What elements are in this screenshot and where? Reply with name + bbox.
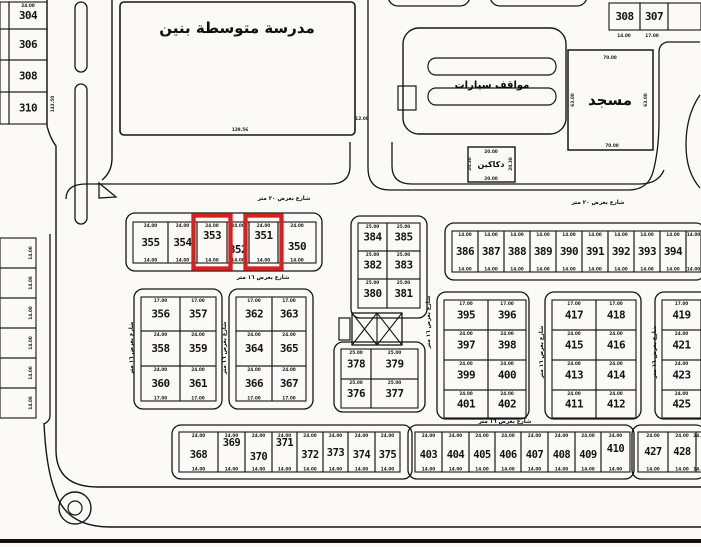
plot-block-block_427: 42724.0014.0042824.0014.0024.0014.00 — [632, 425, 701, 479]
dim-label: 14.00 — [28, 396, 34, 410]
dim-label: 25.00 — [397, 224, 411, 230]
block-curb — [134, 289, 222, 409]
dim-shops-bottom: 20.00 — [484, 176, 498, 182]
dim-label: 14.00 — [562, 232, 576, 238]
plot-block-block_362: 36217.0036317.0036424.0036524.0036624.00… — [229, 289, 313, 409]
dim-label: 24.00 — [247, 332, 261, 338]
plot-cell — [668, 3, 701, 30]
plot-block-row_368: 36824.0014.0036924.0014.0037024.0014.003… — [172, 425, 412, 479]
dim-label: 24.00 — [693, 433, 701, 439]
dim-label: 14.00 — [192, 467, 206, 473]
plot-block-row_350: 35524.0014.0035424.0014.0035324.0014.003… — [126, 213, 322, 271]
plot-number-388: 388 — [508, 245, 526, 258]
dim-label: 24.00 — [459, 391, 473, 397]
dim-label: 17.00 — [645, 33, 659, 39]
dim-mosque-side: 63.00 — [570, 93, 576, 107]
plot-number-373: 373 — [327, 447, 345, 459]
dim-label: 24.00 — [290, 223, 304, 229]
dim-label: 25.00 — [388, 380, 402, 386]
dim-label: 17.00 — [247, 396, 261, 402]
plot-number-406: 406 — [499, 449, 517, 461]
plot-block-block_356: 35617.0035717.0035824.0035924.0036024.00… — [134, 289, 222, 409]
dim-label: 24.00 — [609, 433, 623, 439]
dim-label: 14.00 — [449, 467, 463, 473]
dim-label: 24.00 — [555, 433, 569, 439]
dim-label: 24.00 — [581, 433, 595, 439]
plot-number-389: 389 — [534, 245, 552, 258]
dim-label: 24.00 — [144, 223, 158, 229]
plot-number-414: 414 — [607, 369, 626, 382]
dim-label: 14.00 — [252, 467, 266, 473]
dim-label: 24.00 — [282, 332, 296, 338]
dim-label: 24.00 — [176, 223, 190, 229]
plot-number-375: 375 — [379, 449, 397, 461]
plot-number-354: 354 — [173, 236, 192, 249]
dim-label: 24.00 — [231, 223, 245, 229]
dim-label: 14.00 — [640, 267, 654, 273]
plot-number-408: 408 — [553, 449, 571, 461]
block-curb — [229, 289, 313, 409]
plot-number-387: 387 — [482, 245, 500, 258]
plot-number-428: 428 — [673, 446, 691, 458]
utility-plot — [339, 318, 350, 340]
plot-number-396: 396 — [498, 309, 517, 322]
dim-label: 24.00 — [475, 433, 489, 439]
plot-number-385: 385 — [394, 231, 412, 244]
parking-row — [428, 58, 556, 75]
dim-label: 24.00 — [329, 433, 343, 439]
dim-label: 14.00 — [176, 258, 190, 264]
dim-label: 24.00 — [675, 331, 689, 337]
plot-number-399: 399 — [457, 369, 475, 382]
dim-label: 24.00 — [303, 433, 317, 439]
dim-label: 17.00 — [154, 396, 168, 402]
dim-label: 24.00 — [459, 361, 473, 367]
dim-label: 25.00 — [366, 252, 380, 258]
plot-block-left_strip: 14.0014.0014.0014.0014.0014.00 — [0, 238, 36, 418]
road-edge — [47, 126, 701, 487]
plot-number-308: 308 — [615, 10, 633, 23]
dim-label: 24.00 — [675, 391, 689, 397]
plot-number-402: 402 — [498, 398, 516, 411]
plot-number-359: 359 — [189, 342, 207, 355]
block-curb — [172, 425, 412, 479]
dim-shops-side: 20.30 — [467, 157, 473, 171]
dim-label: 24.00 — [192, 433, 206, 439]
dim-school-width: 129.56 — [232, 127, 249, 133]
dim-label: 24.00 — [247, 367, 261, 373]
dim-label: 14.00 — [614, 232, 628, 238]
street-label-16m-vertical: شارع بعرض ١٦ متر — [426, 295, 432, 349]
dim-label: 24.00 — [191, 332, 205, 338]
plot-number-395: 395 — [457, 309, 475, 322]
dim-label: 14.00 — [536, 232, 550, 238]
dim-label: 24.00 — [675, 433, 689, 439]
dim-label: 24.00 — [225, 433, 239, 439]
plot-cell — [0, 29, 9, 60]
dim-label: 14.00 — [381, 467, 395, 473]
plot-number-391: 391 — [586, 245, 605, 258]
dim-label: 24.00 — [21, 3, 35, 9]
dim-label: 14.00 — [687, 232, 701, 238]
dim-label: 14.00 — [588, 267, 602, 273]
plot-number-409: 409 — [579, 449, 597, 461]
road-median — [75, 2, 87, 72]
dim-label: 25.00 — [366, 280, 380, 286]
dim-label: 24.00 — [257, 223, 271, 229]
plot-cell — [0, 60, 9, 92]
plot-number-415: 415 — [565, 339, 583, 352]
dim-label: 14.00 — [475, 467, 489, 473]
dim-label: 14.00 — [510, 232, 524, 238]
dim-label: 14.00 — [687, 267, 701, 273]
plot-number-404: 404 — [447, 449, 465, 461]
dim-label: 24.00 — [567, 361, 581, 367]
plot-block-left_sliver — [0, 2, 9, 124]
dim-label: 24.00 — [500, 391, 514, 397]
dim-label: 24.00 — [381, 433, 395, 439]
plot-number-384: 384 — [363, 231, 382, 244]
block-cut-top — [490, 0, 587, 6]
street-label-16m-vertical: شارع بعرض ١٦ متر — [222, 321, 228, 375]
plot-block-block_417: 41717.0041817.0041524.0041624.0041324.00… — [545, 292, 641, 419]
dim-label: 14.00 — [675, 467, 689, 473]
plot-number-358: 358 — [151, 342, 169, 355]
dim-label: 17.00 — [609, 301, 623, 307]
plot-number-411: 411 — [565, 398, 584, 411]
dim-label: 17.00 — [567, 301, 581, 307]
dim-label: 14.00 — [536, 267, 550, 273]
dim-label: 24.00 — [609, 361, 623, 367]
dim-label: 14.00 — [290, 258, 304, 264]
plot-block-block_378: 37825.0037925.0037625.0037725.00 — [334, 342, 425, 412]
plot-number-304: 304 — [19, 9, 38, 22]
dim-label: 14.00 — [28, 366, 34, 380]
dim-label: 24.00 — [675, 361, 689, 367]
plot-number-351: 351 — [254, 229, 273, 242]
street-label-16m-vertical: شارع بعرض ١٦ متر — [539, 325, 545, 379]
dim-label: 25.00 — [366, 224, 380, 230]
street-curb — [392, 142, 664, 184]
plot-number-427: 427 — [644, 446, 662, 458]
plot-number-405: 405 — [473, 449, 491, 461]
dim-label: 14.00 — [562, 267, 576, 273]
dim-label: 24.00 — [154, 332, 168, 338]
dim-label: 17.00 — [282, 298, 296, 304]
dim-label: 24.00 — [278, 433, 292, 439]
plot-number-383: 383 — [394, 259, 412, 272]
plot-block-block_419: 41917.0017.0042124.0024.0042324.0024.004… — [655, 292, 701, 419]
plot-number-386: 386 — [456, 245, 475, 258]
plot-cell — [0, 2, 9, 29]
plot-number-392: 392 — [612, 245, 630, 258]
dim-label: 17.00 — [154, 298, 168, 304]
dim-label: 25.00 — [397, 252, 411, 258]
plot-number-374: 374 — [353, 449, 371, 461]
dim-label: 14.00 — [640, 232, 654, 238]
plot-number-403: 403 — [420, 449, 438, 461]
dim-label: 24.00 — [609, 331, 623, 337]
dim-label: 14.00 — [278, 467, 292, 473]
plot-block-row_386: 38614.0014.0038714.0014.0038814.0014.003… — [445, 223, 701, 280]
dim-label: 14.00 — [588, 232, 602, 238]
dim-label: 25.00 — [349, 380, 363, 386]
mosque-label: مسجد — [588, 91, 632, 109]
dim-label: 17.00 — [191, 298, 205, 304]
dim-label: 14.00 — [231, 258, 245, 264]
dim-label: 25.00 — [388, 350, 402, 356]
plot-number-355: 355 — [141, 236, 159, 249]
dim-label: 17.00 — [282, 396, 296, 402]
plot-number-407: 407 — [526, 449, 544, 461]
dim-label: 24.00 — [355, 433, 369, 439]
plot-number-306: 306 — [19, 38, 38, 51]
dim-label: 14.00 — [144, 258, 158, 264]
plot-block-block_395: 39517.0039617.0039724.0039824.0039924.00… — [437, 292, 529, 419]
dim-label: 14.00 — [225, 467, 239, 473]
street-label-20m: شارع بعرض ٢٠ متر — [571, 200, 625, 206]
traffic-island — [99, 183, 116, 198]
dim-label: 14.00 — [458, 232, 472, 238]
plot-number-398: 398 — [498, 339, 516, 352]
parking-label: مواقف سيارات — [455, 80, 530, 91]
plot-number-394: 394 — [664, 245, 683, 258]
plot-number-400: 400 — [498, 369, 516, 382]
dim-label: 17.00 — [459, 301, 473, 307]
dim-label: 24.00 — [500, 361, 514, 367]
dim-label: 24.00 — [528, 433, 542, 439]
dim-label: 14.00 — [303, 467, 317, 473]
plot-number-401: 401 — [457, 398, 476, 411]
dim-label: 17.00 — [675, 301, 689, 307]
dim-label: 14.00 — [555, 467, 569, 473]
dim-label: 24.00 — [501, 433, 515, 439]
dim-mosque-side: 63.00 — [643, 93, 649, 107]
street-label-16m-vertical: شارع بعرض ١٦ متر — [652, 325, 658, 379]
dim-label: 24.00 — [205, 223, 219, 229]
plot-number-397: 397 — [457, 339, 475, 352]
block-curb — [44, 234, 50, 424]
plot-number-380: 380 — [363, 287, 381, 300]
plot-number-377: 377 — [385, 387, 403, 400]
plot-number-365: 365 — [280, 342, 298, 355]
dim-label: 24.00 — [154, 367, 168, 373]
plot-number-350: 350 — [288, 240, 306, 253]
plot-cell — [0, 92, 9, 124]
plot-number-393: 393 — [638, 245, 656, 258]
plot-number-379: 379 — [385, 358, 403, 371]
dim-label: 17.00 — [191, 396, 205, 402]
dim-label: 24.00 — [567, 391, 581, 397]
roundabout-inner — [68, 501, 82, 515]
plot-number-308: 308 — [19, 70, 37, 83]
road-edge — [686, 95, 700, 188]
plot-number-376: 376 — [347, 387, 366, 400]
dim-label: 14.00 — [28, 246, 34, 260]
dim-shops-top: 20.00 — [484, 149, 498, 155]
dim-label: 24.00 — [191, 367, 205, 373]
dim-label: 14.00 — [617, 33, 631, 39]
dim-label: 14.00 — [646, 467, 660, 473]
dim-label: 14.00 — [484, 267, 498, 273]
dim-label: 17.00 — [247, 298, 261, 304]
plot-number-353: 353 — [203, 229, 221, 242]
plot-map-canvas: 30424.0030630831030830735524.0014.003542… — [0, 0, 701, 547]
dim-label: 24.00 — [646, 433, 660, 439]
dim-label: 14.00 — [484, 232, 498, 238]
plot-block-top_right: 308307 — [609, 3, 701, 30]
road-median — [75, 84, 87, 224]
plot-number-425: 425 — [672, 398, 690, 411]
school-label: مدرسة متوسطة بنين — [159, 19, 315, 37]
map-bottom-border — [0, 539, 701, 543]
dim-label: 14.00 — [581, 467, 595, 473]
dim-label: 14.00 — [28, 336, 34, 350]
dim-label: 14.00 — [693, 467, 701, 473]
dim-label: 24.00 — [449, 433, 463, 439]
dim-label: 14.00 — [257, 258, 271, 264]
street-label-16m: شارع بعرض ١٦ متر — [236, 275, 290, 281]
street-label-16m: شارع بعرض ١٦ متر — [478, 419, 532, 425]
plot-number-357: 357 — [189, 308, 207, 321]
dim-label: 14.00 — [510, 267, 524, 273]
plot-number-419: 419 — [672, 309, 690, 322]
dim-label: 14.00 — [666, 267, 680, 273]
plot-number-370: 370 — [250, 451, 268, 463]
parking-kiosk — [398, 86, 416, 110]
dim-label: 25.00 — [397, 280, 411, 286]
plot-number-390: 390 — [560, 245, 578, 258]
plot-number-413: 413 — [565, 369, 583, 382]
dim-label: 24.00 — [282, 367, 296, 373]
plot-number-421: 421 — [672, 339, 691, 352]
plot-number-307: 307 — [645, 10, 663, 23]
dim-label: 25.00 — [349, 350, 363, 356]
plot-number-412: 412 — [607, 398, 625, 411]
plot-block-row_403: 40324.0014.0040424.0014.0040524.0014.004… — [408, 425, 634, 479]
dim-label: 14.00 — [355, 467, 369, 473]
plot-number-367: 367 — [280, 377, 298, 390]
dim-shops-side: 20.30 — [508, 157, 514, 171]
road-edge — [44, 423, 701, 527]
dim-label: 24.00 — [252, 433, 266, 439]
dim-label: 12.00 — [355, 116, 369, 122]
plot-number-362: 362 — [245, 308, 263, 321]
plot-number-361: 361 — [189, 377, 208, 390]
plot-number-364: 364 — [245, 342, 264, 355]
plot-number-368: 368 — [190, 449, 208, 461]
dim-label: 24.00 — [459, 331, 473, 337]
block-curb — [334, 342, 425, 412]
plot-number-363: 363 — [280, 308, 298, 321]
road-edge — [102, 0, 112, 180]
dim-mosque-bottom: 70.00 — [605, 143, 619, 149]
dim-label: 14.00 — [28, 306, 34, 320]
plot-number-417: 417 — [565, 309, 583, 322]
shops-label: دكاكين — [478, 160, 505, 169]
plot-number-356: 356 — [151, 308, 170, 321]
dim-label: 14.00 — [666, 232, 680, 238]
plot-number-423: 423 — [672, 369, 690, 382]
plot-number-310: 310 — [19, 102, 37, 115]
dim-label: 24.00 — [500, 331, 514, 337]
plot-number-360: 360 — [151, 377, 169, 390]
dim-label: 14.00 — [528, 467, 542, 473]
street-label-20m: شارع بعرض ٢٠ متر — [257, 196, 311, 202]
plot-number-366: 366 — [245, 377, 264, 390]
plot-number-416: 416 — [607, 339, 626, 352]
dim-label: 24.00 — [609, 391, 623, 397]
dim-label: 14.00 — [501, 467, 515, 473]
plot-number-381: 381 — [394, 287, 413, 300]
plot-block-mid_col: 38425.0038525.0038225.0038325.0038025.00… — [351, 216, 427, 318]
plot-number-418: 418 — [607, 309, 625, 322]
dim-label: 14.00 — [614, 267, 628, 273]
plot-number-378: 378 — [347, 358, 365, 371]
plot-number-372: 372 — [301, 449, 319, 461]
block-curb — [545, 292, 641, 419]
dim-label: 14.00 — [609, 467, 623, 473]
dim-label: 14.00 — [28, 276, 34, 290]
dim-road-length: 143.50 — [50, 96, 56, 113]
dim-label: 24.00 — [567, 331, 581, 337]
dim-label: 14.00 — [458, 267, 472, 273]
dim-mosque-top: 70.00 — [603, 55, 617, 61]
plot-number-382: 382 — [363, 259, 381, 272]
plot-number-410: 410 — [607, 443, 625, 455]
plot-block-left_col: 30424.00306308310 — [9, 2, 47, 124]
dim-label: 24.00 — [422, 433, 436, 439]
block-cut-top — [388, 0, 470, 6]
dim-label: 14.00 — [205, 258, 219, 264]
dim-label: 14.00 — [329, 467, 343, 473]
dim-label: 17.00 — [500, 301, 514, 307]
dim-label: 14.00 — [422, 467, 436, 473]
street-label-16m-vertical: شارع بعرض ١٦ متر — [129, 321, 135, 375]
